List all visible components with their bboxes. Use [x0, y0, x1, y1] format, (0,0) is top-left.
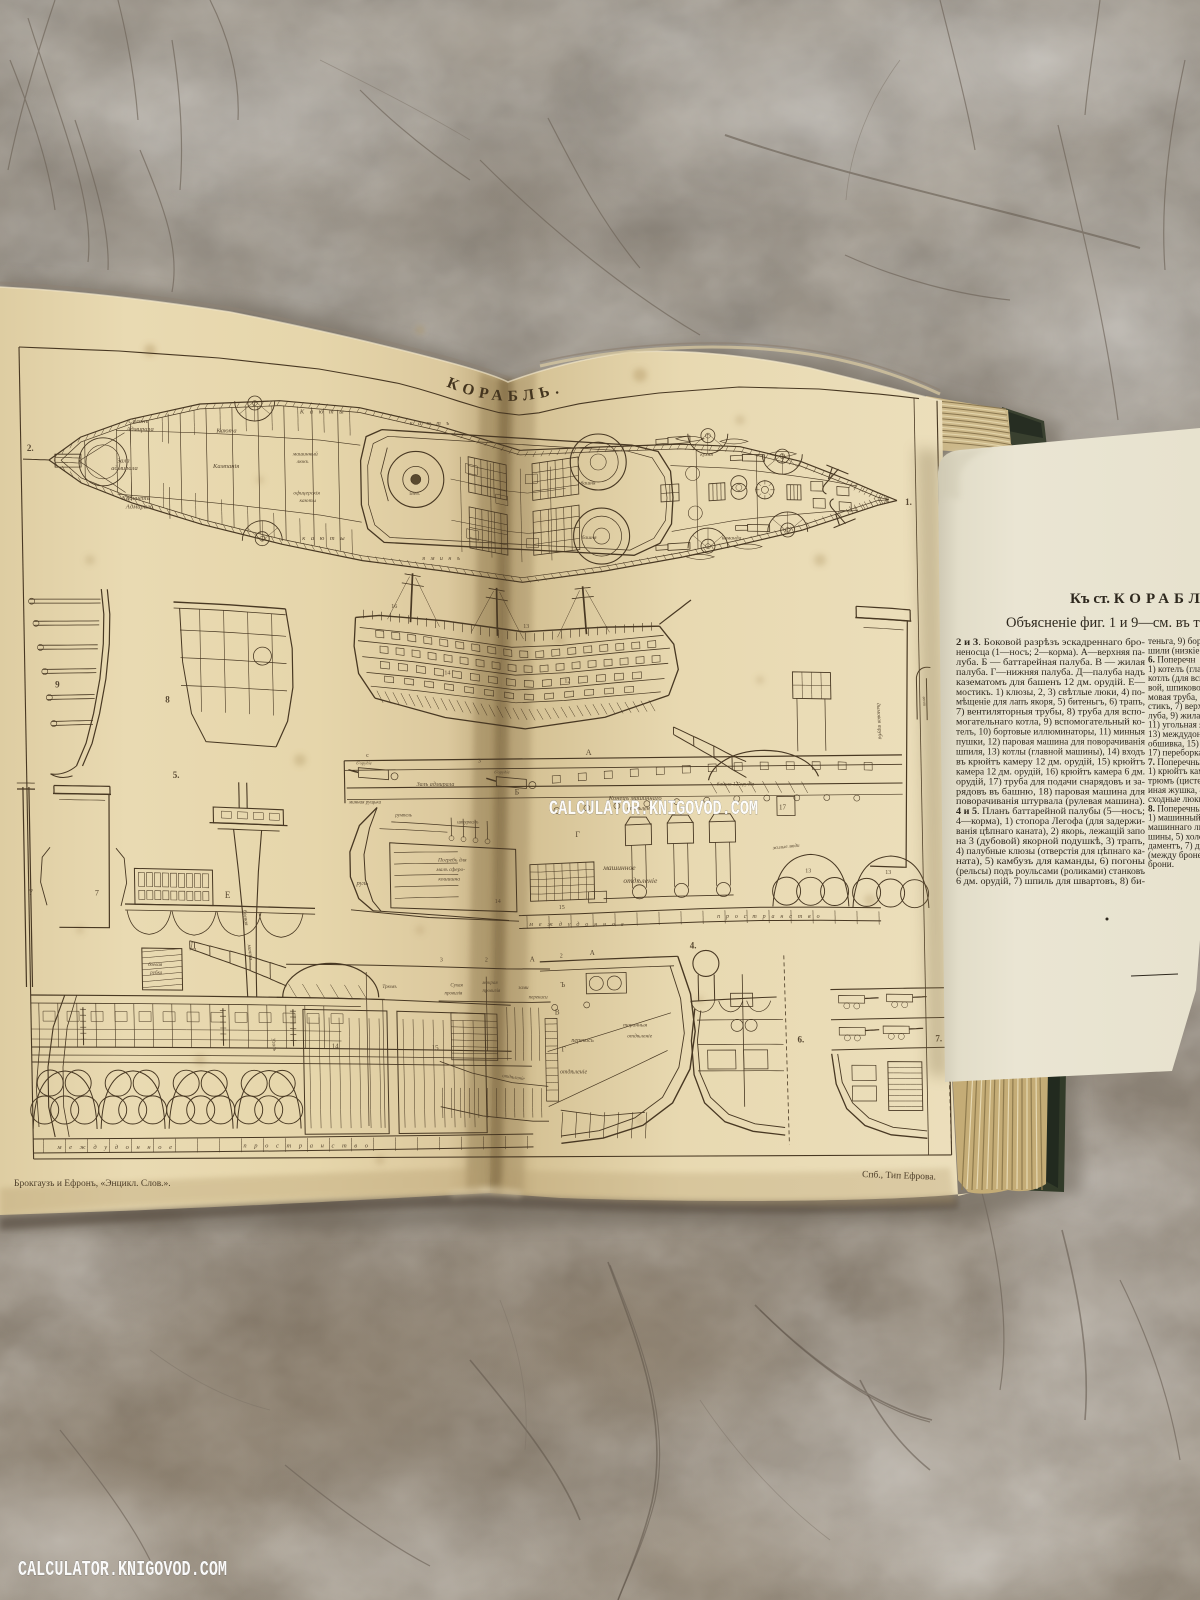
svg-text:7: 7	[29, 888, 33, 897]
svg-text:могательнаго котла, 9) вспомог: могательнаго котла, 9) вспомогательный к…	[956, 717, 1145, 727]
svg-text:машинный: машинный	[292, 451, 318, 458]
svg-text:В: В	[555, 1009, 560, 1017]
svg-text:Залъ адмирала: Залъ адмирала	[417, 781, 455, 788]
svg-text:15: 15	[559, 905, 565, 911]
svg-text:14: 14	[495, 899, 501, 905]
svg-text:13: 13	[805, 868, 811, 874]
svg-text:провизія: провизія	[483, 989, 502, 994]
svg-text:отдѣленіе: отдѣленіе	[560, 1069, 587, 1076]
svg-text:8: 8	[165, 695, 170, 705]
svg-text:Къ ст. КОРАБЛ: Къ ст. КОРАБЛ	[1070, 591, 1200, 607]
svg-text:14: 14	[332, 1043, 340, 1051]
svg-text:7) вентиляторныя трубы, 8) тру: 7) вентиляторныя трубы, 8) труба для всп…	[956, 707, 1145, 717]
svg-text:Адмирала: Адмирала	[125, 426, 153, 433]
svg-text:неносца (1—носъ; 2—корма). А—в: неносца (1—носъ; 2—корма). А—верхняя па-	[956, 647, 1145, 657]
svg-text:13: 13	[523, 624, 529, 630]
svg-text:2.: 2.	[27, 443, 34, 453]
svg-text:отдѣленіе: отдѣленіе	[627, 1033, 652, 1040]
svg-text:я м и н ъ: я м и н ъ	[421, 556, 462, 562]
svg-text:ванія цѣпнаго каната), 2) якор: ванія цѣпнаго каната), 2) якорь, лежащій…	[956, 826, 1145, 836]
svg-text:16: 16	[391, 604, 397, 610]
svg-text:башня 12'орудія: башня 12'орудія	[717, 781, 755, 788]
svg-text:к а ю т ы: к а ю т ы	[302, 535, 346, 542]
svg-text:на 3 (дубовой) якорной подушкѣ: на 3 (дубовой) якорной подушкѣ, 3) трапъ…	[956, 836, 1145, 846]
svg-text:Е: Е	[225, 890, 231, 900]
svg-text:руль: руль	[356, 880, 369, 887]
svg-text:поворачиванія штурвала (рулева: поворачиванія штурвала (рулевая машина).	[956, 796, 1145, 806]
svg-text:шпиля, 13) котлы (главной маши: шпиля, 13) котлы (главной машины), 14) в…	[956, 747, 1145, 757]
svg-text:Зала: Зала	[117, 457, 130, 464]
svg-text:Трюмъ: Трюмъ	[382, 985, 397, 990]
svg-text:брони.: брони.	[1148, 859, 1174, 869]
svg-text:въ крюйтъ камеру 12 дм. орудій: въ крюйтъ камеру 12 дм. орудій, 15) крюй…	[956, 756, 1145, 766]
svg-text:13: 13	[885, 870, 891, 876]
svg-text:малъ сферо-: малъ сферо-	[435, 866, 465, 873]
svg-text:таранныя: таранныя	[623, 1023, 647, 1029]
svg-text:Каюта: Каюта	[215, 428, 236, 435]
svg-text:к а ю т ъ: к а ю т ъ	[410, 421, 451, 427]
svg-text:А: А	[530, 956, 535, 964]
svg-text:Брокгаузъ и Ефронъ, «Энцикл. С: Брокгаузъ и Ефронъ, «Энцикл. Слов.».	[14, 1178, 171, 1189]
svg-text:п р о с т р а н с т в о: п р о с т р а н с т в о	[717, 914, 822, 920]
svg-text:6 дм. орудій, 7) шпиль для шва: 6 дм. орудій, 7) шпиль для швартовъ, 8) …	[956, 876, 1145, 886]
svg-text:мокрая: мокрая	[481, 981, 498, 986]
svg-text:4—корма), 1) стопора Легофа (д: 4—корма), 1) стопора Легофа (для задержи…	[956, 816, 1145, 826]
svg-text:луба. Б — баттарейная палуба.: луба. Б — баттарейная палуба. В — жилая	[956, 657, 1146, 667]
svg-text:Салонъ: Салонъ	[128, 418, 149, 425]
svg-text:орудій, 17) труба для подачи с: орудій, 17) труба для подачи снарядовъ и…	[956, 776, 1145, 786]
svg-text:б'орудіе: б'орудіе	[356, 761, 372, 766]
svg-text:перекось: перекось	[571, 1038, 594, 1044]
svg-text:Сухая: Сухая	[450, 983, 463, 988]
svg-text:м е ж д у д о н н о е: м е ж д у д о н н о е	[56, 1144, 175, 1151]
svg-text:Адмирала: Адмирала	[125, 503, 153, 510]
svg-text:12: 12	[564, 679, 570, 685]
svg-text:машинное: машинное	[602, 863, 636, 872]
svg-text:мостикъ. 1) клюзы, 2, 3) свѣтл: мостикъ. 1) клюзы, 2, 3) свѣтлые люки, 4…	[956, 687, 1145, 697]
svg-text:перекиси: перекиси	[529, 995, 548, 1000]
svg-text:рядовъ въ башню, 18) паровая м: рядовъ въ башню, 18) паровая машина для	[956, 786, 1146, 796]
svg-text:кухня: кухня	[700, 452, 713, 458]
svg-text:каюты: каюты	[300, 498, 317, 504]
svg-text:Кампанія: Кампанія	[212, 463, 239, 470]
svg-text:15: 15	[432, 1044, 440, 1052]
svg-text:6.: 6.	[798, 1034, 805, 1044]
svg-text:(рельсы) подъ роульсами (ролик: (рельсы) подъ роульсами (роликами) станк…	[956, 866, 1145, 876]
svg-text:минная рущька: минная рущька	[348, 801, 382, 806]
svg-text:боевая: боевая	[148, 963, 163, 968]
svg-text:4.: 4.	[690, 941, 697, 951]
svg-text:провизія: провизія	[445, 992, 464, 997]
svg-text:офицерскія: офицерскія	[293, 490, 320, 497]
svg-text:14: 14	[444, 670, 450, 676]
svg-text:А: А	[590, 949, 595, 957]
svg-text:палуба. Г—нижняя палуба. Д—пал: палуба. Г—нижняя палуба. Д—палуба надъ	[956, 667, 1145, 677]
svg-text:Объясненіе фиг. 1 и 9—см. въ т: Объясненіе фиг. 1 и 9—см. въ текс	[1006, 615, 1200, 631]
svg-text:с: с	[366, 753, 369, 759]
svg-text:17: 17	[779, 804, 787, 812]
svg-text:зами: зами	[517, 986, 529, 991]
svg-text:п р о с т р а н с т в о: п р о с т р а н с т в о	[243, 1142, 371, 1149]
svg-text:румпель: румпель	[394, 813, 412, 818]
svg-text:Кабинетъ: Кабинетъ	[121, 495, 151, 502]
svg-text:б'орудіе: б'орудіе	[494, 770, 510, 775]
svg-text:башня: башня	[581, 480, 596, 487]
svg-text:CALCULATOR.KNIGOVOD.COM: CALCULATOR.KNIGOVOD.COM	[18, 1559, 227, 1582]
svg-text:команда: команда	[722, 535, 742, 542]
svg-text:3: 3	[440, 958, 443, 964]
svg-text:3: 3	[478, 759, 481, 765]
svg-text:А: А	[586, 748, 592, 757]
svg-text:5.: 5.	[173, 770, 180, 780]
svg-text:2: 2	[485, 958, 488, 964]
svg-text:4 и 5. Планъ баттарейной палуб: 4 и 5. Планъ баттарейной палубы (5—носъ;	[956, 806, 1145, 816]
svg-text:телъ, 10) бортовые иллюминатор: телъ, 10) бортовые иллюминаторы, 11) мин…	[956, 727, 1146, 737]
svg-text:CALCULATOR.KNIGOVOD.COM: CALCULATOR.KNIGOVOD.COM	[549, 798, 758, 821]
svg-text:камера 12 дм. орудій, 16) крюй: камера 12 дм. орудій, 16) крюйтъ камера …	[956, 766, 1145, 776]
svg-text:мѣщеніе для лапъ якоря, 5) бит: мѣщеніе для лапъ якоря, 5) битеньгъ, 6) …	[956, 697, 1145, 707]
svg-text:2 и 3. Боковой разрѣзъ эскадре: 2 и 3. Боковой разрѣзъ эскадреннаго бро-	[956, 637, 1145, 647]
svg-text:9: 9	[55, 680, 60, 690]
svg-text:1.: 1.	[905, 497, 912, 507]
svg-text:пушки, 12) паровая машина для: пушки, 12) паровая машина для поворачива…	[956, 737, 1146, 747]
svg-text:башня: башня	[582, 534, 597, 541]
svg-text:рубка: рубка	[149, 971, 162, 976]
svg-text:4) палубные клюзы (отверстія д: 4) палубные клюзы (отверстія для цѣпнаго…	[956, 846, 1145, 856]
svg-text:отдѣленіе: отдѣленіе	[623, 876, 658, 885]
svg-text:ната), 5) камбузъ для каманды,: ната), 5) камбузъ для каманды, 6) погоны	[956, 856, 1145, 866]
svg-text:штурвалъ: штурвалъ	[457, 821, 479, 826]
svg-text:Б: Б	[515, 787, 520, 796]
svg-text:кошишна: кошишна	[438, 876, 460, 882]
svg-text:7: 7	[95, 889, 99, 898]
svg-text:Ъ: Ъ	[560, 981, 565, 989]
svg-text:Г: Г	[575, 830, 580, 839]
svg-text:К а ю т ы: К а ю т ы	[299, 409, 346, 416]
svg-text:Погребъ для: Погребъ для	[437, 857, 467, 864]
svg-text:2: 2	[560, 954, 563, 960]
svg-text:адмирала: адмирала	[111, 465, 138, 472]
svg-text:м е ж д у д о н н о е: м е ж д у д о н н о е	[528, 921, 626, 928]
svg-text:люкъ: люкъ	[296, 459, 309, 465]
svg-text:казематомъ для башенъ 12 дм. о: казематомъ для башенъ 12 дм. орудій. Е—	[956, 677, 1146, 687]
svg-text:элев.: элев.	[409, 491, 420, 497]
